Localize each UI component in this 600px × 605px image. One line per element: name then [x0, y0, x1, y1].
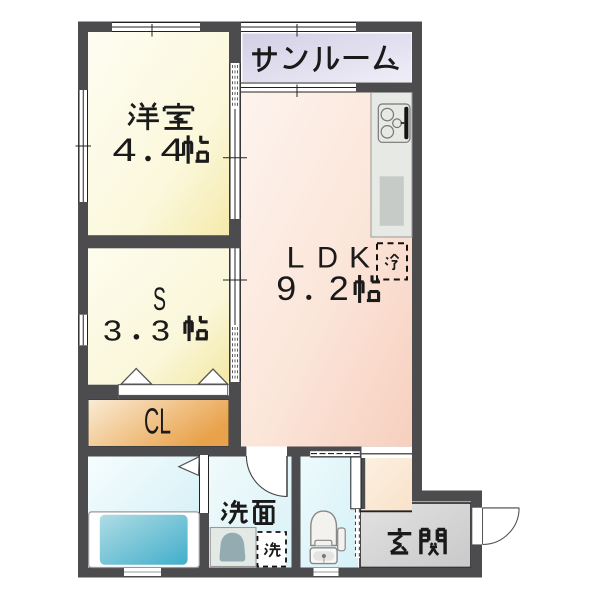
svg-text:4: 4 — [113, 132, 137, 168]
svg-text:S: S — [153, 281, 166, 317]
svg-text:3: 3 — [151, 316, 170, 348]
svg-text:3: 3 — [103, 316, 122, 348]
svg-text:4: 4 — [161, 132, 185, 168]
svg-text:9: 9 — [276, 270, 296, 308]
svg-text:2: 2 — [329, 270, 349, 308]
svg-text:K: K — [349, 242, 370, 275]
svg-text:CL: CL — [144, 401, 171, 442]
